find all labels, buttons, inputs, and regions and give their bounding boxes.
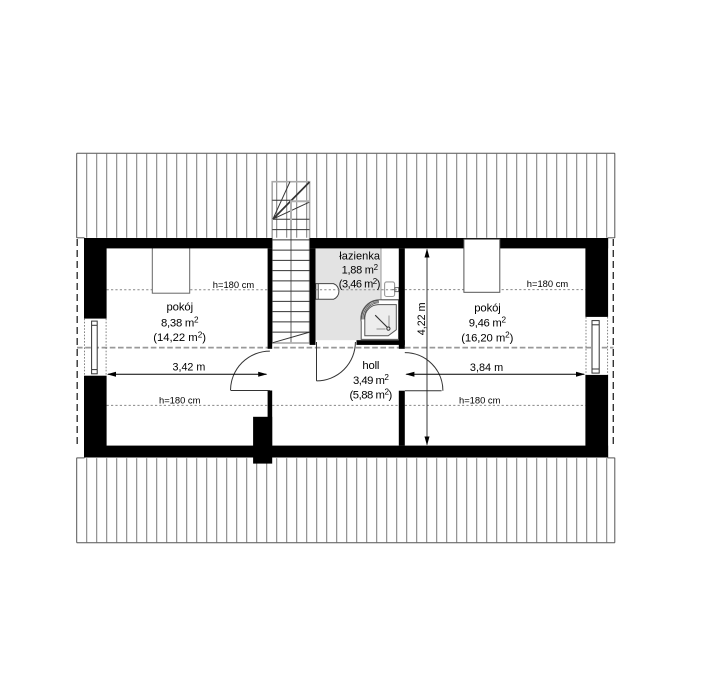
svg-text:h=180 cm: h=180 cm: [213, 279, 255, 290]
svg-text:1,88 m2: 1,88 m2: [342, 263, 379, 277]
svg-text:3,84 m: 3,84 m: [470, 362, 503, 374]
svg-text:h=180 cm: h=180 cm: [527, 278, 569, 289]
svg-text:4,22 m: 4,22 m: [416, 303, 428, 336]
svg-text:h=180 cm: h=180 cm: [159, 394, 201, 405]
svg-text:3,42 m: 3,42 m: [173, 362, 206, 374]
svg-text:łazienka: łazienka: [339, 251, 381, 263]
svg-text:pokój: pokój: [474, 303, 501, 315]
svg-text:8,38 m2: 8,38 m2: [161, 316, 199, 330]
svg-text:3,49 m2: 3,49 m2: [353, 373, 389, 387]
svg-text:holl: holl: [362, 360, 379, 372]
svg-text:h=180 cm: h=180 cm: [459, 394, 501, 405]
svg-text:pokój: pokój: [167, 302, 194, 314]
svg-text:9,46 m2: 9,46 m2: [469, 316, 507, 330]
